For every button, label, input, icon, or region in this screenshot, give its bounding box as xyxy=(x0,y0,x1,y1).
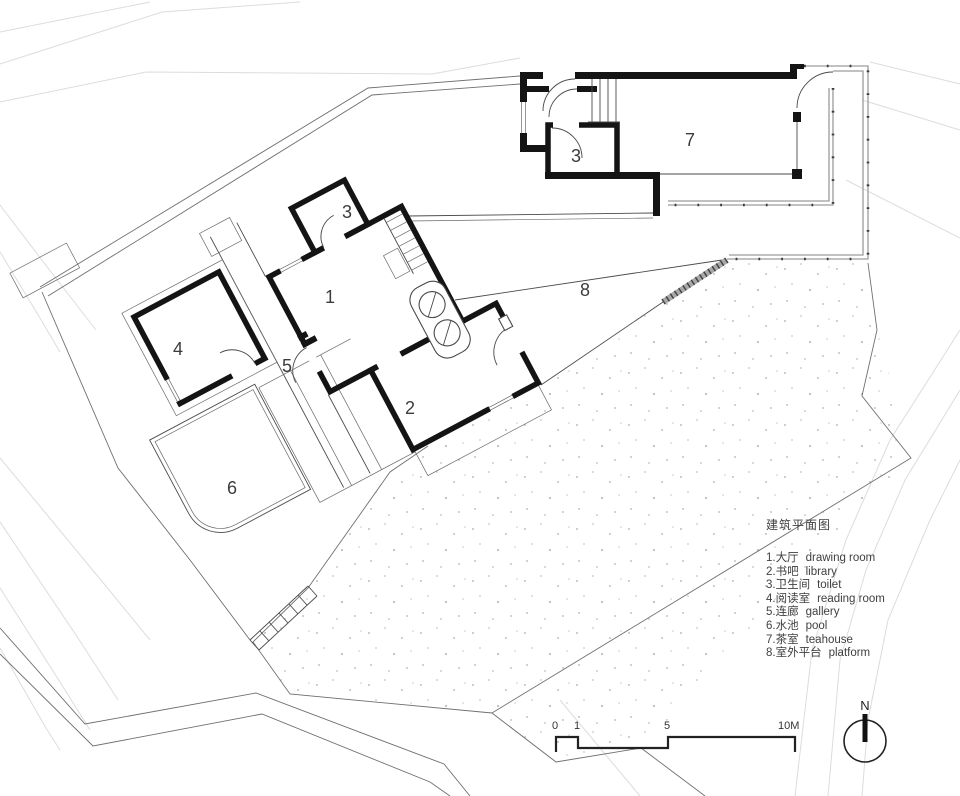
door-arc-vestibule xyxy=(549,89,577,117)
site-plan-drawing: 1 2 3 3 4 5 6 7 8 0 1 5 10M N xyxy=(0,0,960,796)
legend-item: 8.室外平台platform xyxy=(766,647,885,661)
room-label-1: 1 xyxy=(325,287,335,307)
ground-stipple xyxy=(253,261,908,762)
upper-terrace-step xyxy=(10,243,80,298)
legend-item: 6.水池pool xyxy=(766,620,885,634)
room-label-3-teahouse: 3 xyxy=(571,146,581,166)
legend-item: 4.阅读室reading room xyxy=(766,593,885,607)
column xyxy=(792,169,802,179)
legend-title: 建筑平面图 xyxy=(766,516,885,533)
teahouse-west-wall xyxy=(520,72,527,102)
room-label-2: 2 xyxy=(405,398,415,418)
scale-label-10m: 10M xyxy=(778,720,799,732)
scale-label-1: 1 xyxy=(574,720,580,732)
north-label: N xyxy=(860,698,869,713)
door-jamb xyxy=(793,112,801,122)
reading-room-walls xyxy=(134,272,265,404)
scale-label-0: 0 xyxy=(552,720,558,732)
legend-item: 5.连廊gallery xyxy=(766,606,885,620)
scale-label-5: 5 xyxy=(664,720,670,732)
teahouse-stair-icon xyxy=(588,79,620,122)
room-label-5: 5 xyxy=(282,356,292,376)
room-label-8: 8 xyxy=(580,280,590,300)
room-label-6: 6 xyxy=(227,478,237,498)
room-label-7: 7 xyxy=(685,130,695,150)
north-arrow-needle xyxy=(863,714,868,742)
room-label-4: 4 xyxy=(173,339,183,359)
legend: 建筑平面图 1.大厅drawing room 2.书吧library 3.卫生间… xyxy=(766,516,885,661)
legend-item: 3.卫生间toilet xyxy=(766,579,885,593)
floor-plan-canvas: 1 2 3 3 4 5 6 7 8 0 1 5 10M N 建筑平面图 1.大厅… xyxy=(0,0,960,796)
legend-item: 1.大厅drawing room xyxy=(766,552,885,566)
room-label-3-main: 3 xyxy=(342,202,352,222)
gallery-landing xyxy=(199,218,241,257)
pool-outline xyxy=(150,384,311,545)
legend-item: 7.茶室teahouse xyxy=(766,634,885,648)
teahouse-toilet-walls xyxy=(548,125,617,175)
legend-item: 2.书吧library xyxy=(766,566,885,580)
